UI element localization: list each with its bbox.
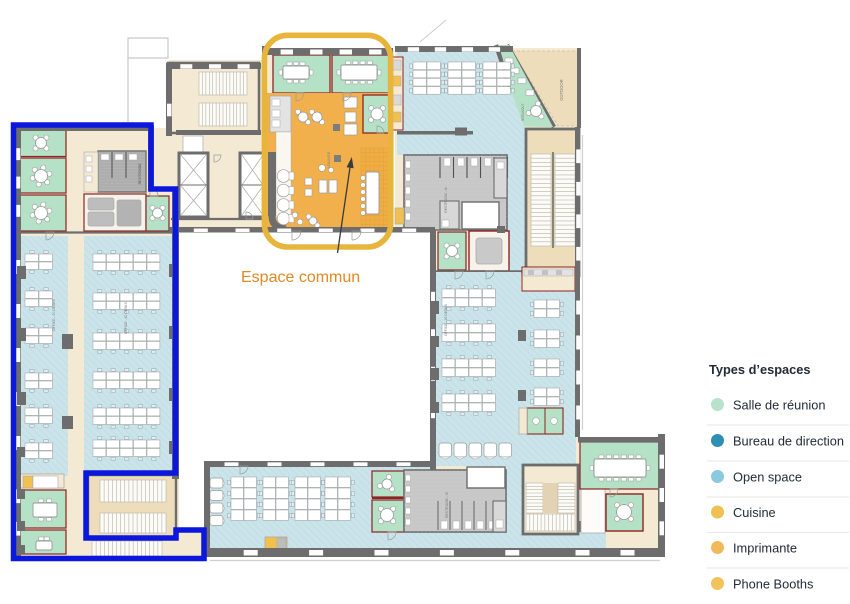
- svg-text:RESTROOM - W: RESTROOM - W: [445, 491, 449, 518]
- svg-text:RESTROOM - M: RESTROOM - M: [444, 187, 448, 213]
- svg-text:Open space: Open space: [733, 469, 802, 484]
- svg-text:Types d’espaces: Types d’espaces: [709, 362, 810, 377]
- svg-text:Cuisine: Cuisine: [733, 505, 776, 520]
- svg-text:Espace commun: Espace commun: [241, 269, 360, 286]
- svg-text:RESTROOM: RESTROOM: [138, 164, 142, 185]
- svg-text:OFFICE - 60 DESKS: OFFICE - 60 DESKS: [124, 301, 128, 333]
- svg-text:OUTDOOR: OUTDOOR: [559, 79, 564, 100]
- svg-text:LOUNGE: LOUNGE: [326, 151, 331, 168]
- svg-text:OFFICE - 20 DESKS: OFFICE - 20 DESKS: [52, 298, 56, 330]
- svg-text:BREAKOUT: BREAKOUT: [521, 103, 525, 121]
- svg-text:Salle de réunion: Salle de réunion: [733, 397, 826, 412]
- svg-text:OFFICE - 16 DESKS: OFFICE - 16 DESKS: [444, 303, 448, 335]
- svg-text:Imprimante: Imprimante: [733, 540, 797, 555]
- svg-text:Bureau de direction: Bureau de direction: [733, 433, 844, 448]
- svg-text:Phone Booths: Phone Booths: [733, 576, 813, 591]
